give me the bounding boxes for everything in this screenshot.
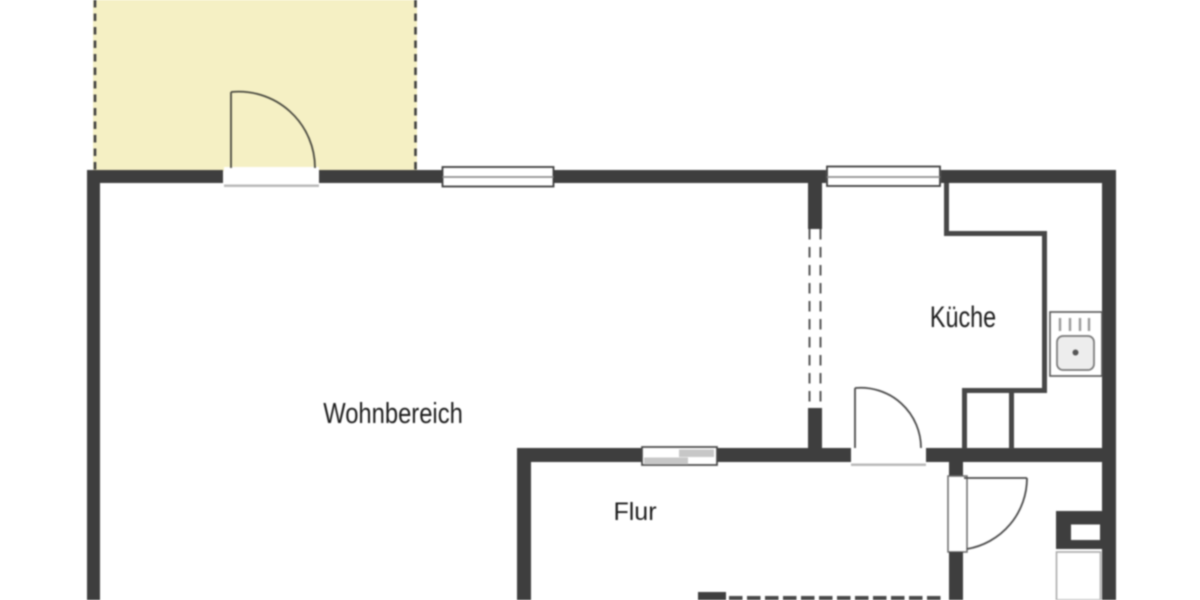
svg-text:Wohnbereich: Wohnbereich <box>323 397 463 430</box>
svg-text:Flur: Flur <box>613 498 656 526</box>
svg-text:Küche: Küche <box>930 300 996 333</box>
